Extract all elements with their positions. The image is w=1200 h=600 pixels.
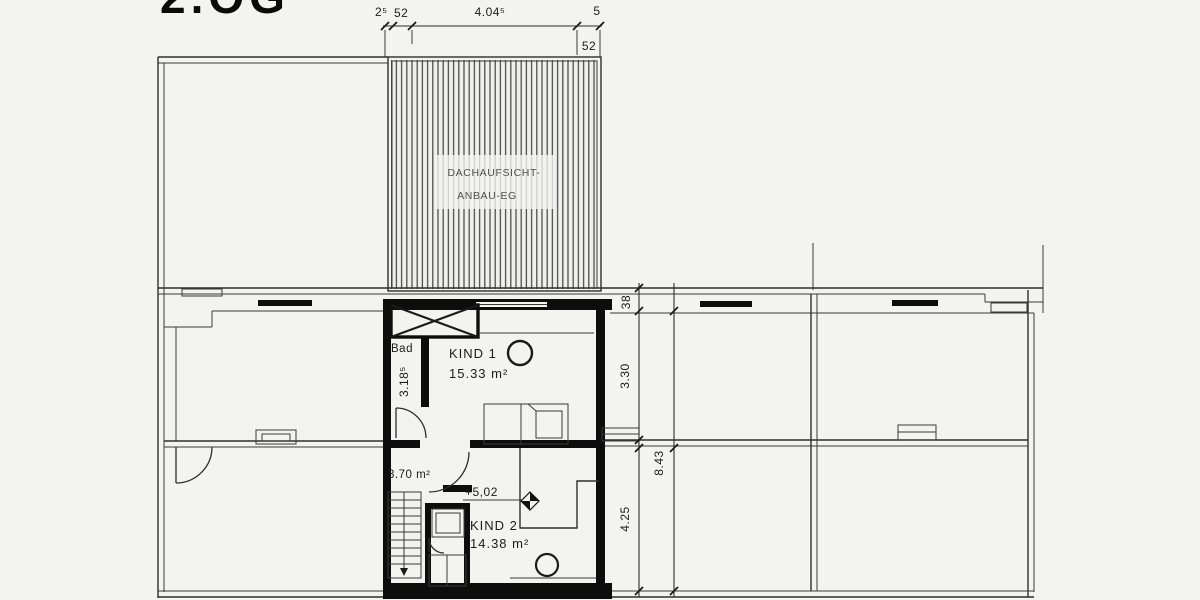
dim-425: 4.25: [618, 506, 632, 531]
roof-hatch-block: DACHAUFSICHT- ANBAU-EG: [388, 57, 601, 291]
kind2-name: KIND 2: [470, 518, 518, 533]
kind2-partition: [520, 448, 599, 528]
room-kind2: +5,02 KIND 2 14.38 m²: [463, 448, 599, 578]
right-wing-interior: [602, 294, 1028, 591]
roof-label-line2: ANBAU-EG: [457, 190, 517, 202]
sill-mark: [182, 289, 222, 296]
dim-top-1: 2⁵: [375, 5, 388, 19]
top-dimension-chain: 2⁵ 52 4.04⁵ 5 52: [375, 4, 604, 57]
sheet-title: 2.OG: [160, 0, 290, 23]
room-kind1: KIND 1 15.33 m²: [449, 341, 568, 444]
window-corner: [991, 303, 1027, 312]
kind2-level-text: +5,02: [465, 485, 498, 499]
hall-area: 3.70 m²: [388, 469, 431, 481]
window-glass-left: [258, 300, 312, 306]
attic-unit-walls: [383, 299, 612, 599]
dim-top-2: 52: [394, 6, 408, 20]
floor-plan-drawing: 2.OG 2⁵ 52 4.04⁵ 5 52 DACHAUFSICHT- ANBA…: [0, 0, 1200, 600]
staircase: [388, 492, 421, 578]
window-glass-mid: [700, 301, 752, 307]
window-glass-right: [892, 300, 938, 306]
kind1-furniture-bed: [484, 404, 521, 444]
floor-plan-page: 2.OG 2⁵ 52 4.04⁵ 5 52 DACHAUFSICHT- ANBA…: [0, 0, 1200, 600]
bad-depth-dim: 3.18⁵: [397, 366, 411, 397]
kind1-name: KIND 1: [449, 346, 497, 361]
dim-top-4: 5: [593, 4, 600, 18]
kind2-lamp-symbol: [536, 554, 558, 576]
dim-top-5: 52: [582, 39, 596, 53]
kind1-area: 15.33 m²: [449, 366, 508, 381]
dim-wall-38: 38: [619, 295, 633, 309]
kind2-area: 14.38 m²: [470, 536, 529, 551]
dim-330: 3.30: [618, 363, 632, 388]
kind1-lamp-symbol: [508, 341, 532, 365]
bad-name: Bad: [391, 343, 413, 355]
dim-843: 8.43: [652, 450, 666, 475]
bath-fixtures: [429, 509, 466, 586]
bad-door-swing: [396, 408, 426, 438]
bath-door-swing: [429, 538, 444, 553]
dim-top-3: 4.04⁵: [475, 5, 506, 19]
left-room-door-swing: [176, 447, 212, 483]
stair-direction-arrow: [400, 568, 408, 576]
left-wing-interior: [164, 311, 383, 447]
roof-label-line1: DACHAUFSICHT-: [448, 167, 541, 179]
floor-title-text: 2.OG: [160, 0, 290, 23]
level-marker-diamond: [521, 492, 539, 510]
